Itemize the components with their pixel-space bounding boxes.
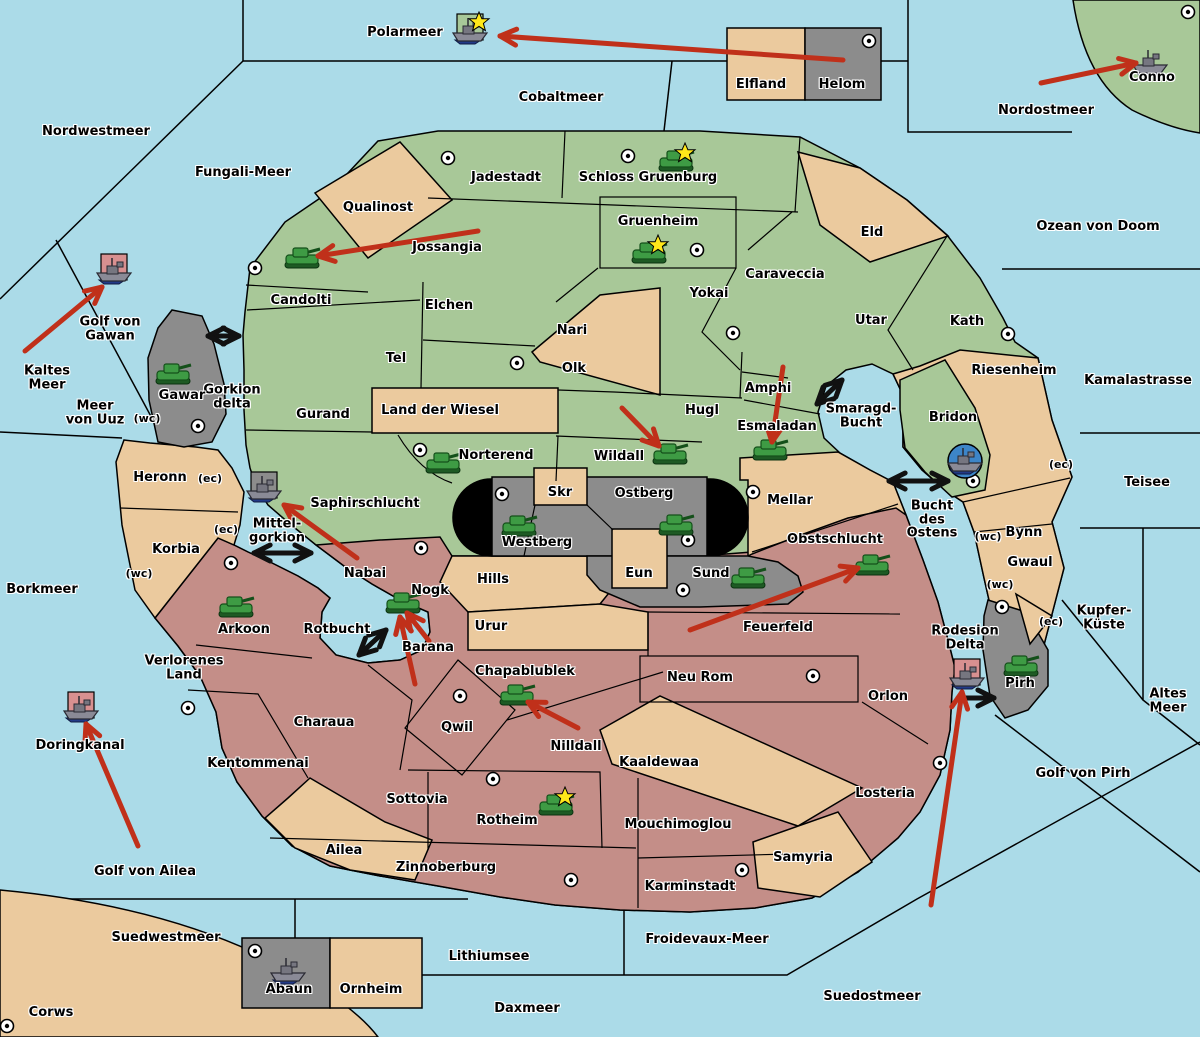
- region-shape-elfland: [727, 28, 805, 100]
- wargame-map: PolarmeerNordwestmeerCobaltmeerNordostme…: [0, 0, 1200, 1037]
- move-order-arrow: [25, 287, 102, 351]
- city-dot-icon: [249, 262, 262, 275]
- landmass-shapes[interactable]: [0, 0, 1200, 1037]
- region-shape-urur: [468, 604, 648, 650]
- city-dot-icon: [182, 702, 195, 715]
- city-dot-icon: [249, 945, 262, 958]
- map-canvas: [0, 0, 1200, 1037]
- city-dot-icon: [807, 670, 820, 683]
- ship-unit[interactable]: [948, 444, 982, 478]
- region-shape-skr: [534, 468, 587, 505]
- city-dot-icon: [691, 244, 704, 257]
- city-dot-icon: [496, 488, 509, 501]
- city-dot-icon: [1182, 6, 1195, 19]
- strait-link-arrow: [254, 545, 311, 561]
- city-dot-icon: [415, 542, 428, 555]
- ship-unit[interactable]: [64, 692, 98, 722]
- ship-unit[interactable]: [97, 254, 131, 284]
- city-dot-icon: [934, 757, 947, 770]
- city-dot-icon: [1002, 328, 1015, 341]
- city-dot-icon: [487, 773, 500, 786]
- region-shape-land-der-wiesel: [372, 388, 558, 433]
- strait-link-arrow: [359, 630, 386, 655]
- city-dot-icon: [442, 152, 455, 165]
- ship-unit[interactable]: [453, 12, 489, 44]
- city-dot-icon: [736, 864, 749, 877]
- city-dot-icon: [727, 327, 740, 340]
- ship-unit[interactable]: [950, 659, 984, 689]
- city-dot-icon: [622, 150, 635, 163]
- city-dot-icon: [225, 557, 238, 570]
- city-dot-icon: [996, 601, 1009, 614]
- city-dot-icon: [565, 874, 578, 887]
- city-dot-icon: [1, 1020, 14, 1033]
- ship-unit[interactable]: [247, 472, 281, 502]
- city-dot-icon: [192, 420, 205, 433]
- move-order-arrow: [85, 724, 138, 846]
- city-dot-icon: [454, 690, 467, 703]
- city-dot-icon: [747, 486, 760, 499]
- region-shape-eun: [612, 529, 667, 588]
- region-shape-ornheim: [330, 938, 422, 1008]
- city-dot-icon: [677, 584, 690, 597]
- city-dot-icon: [414, 444, 427, 457]
- city-dot-icon: [863, 35, 876, 48]
- tank-unit[interactable]: [386, 593, 421, 613]
- city-dot-icon: [511, 357, 524, 370]
- strait-link-arrow: [889, 473, 948, 489]
